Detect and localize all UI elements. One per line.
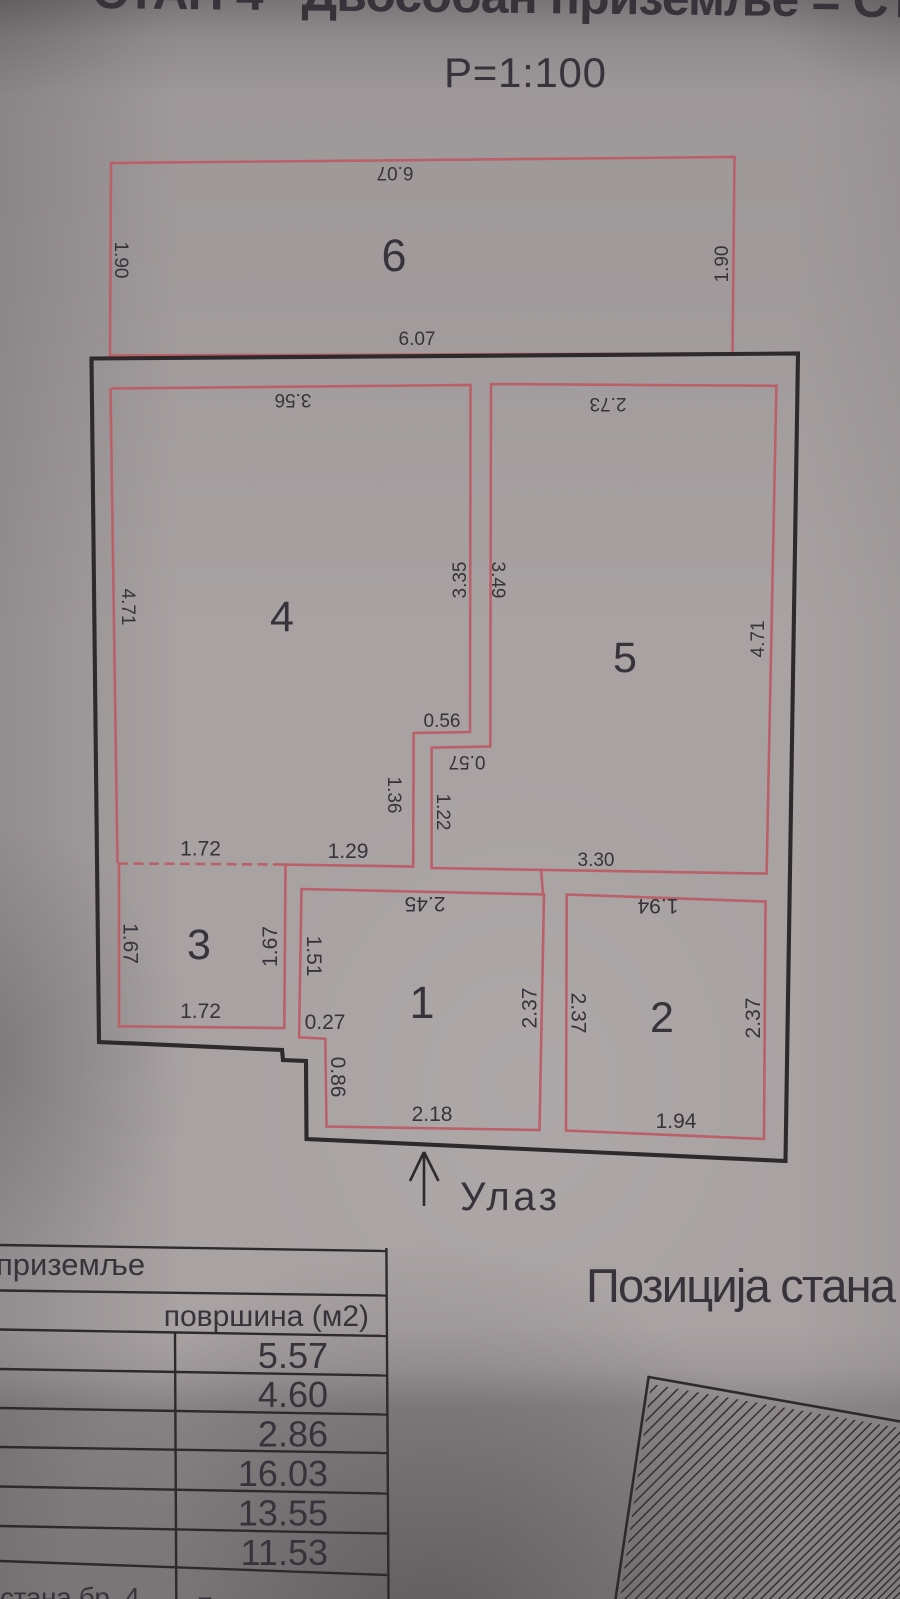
svg-text:5: 5 [196, 1591, 214, 1599]
svg-text:2.86: 2.86 [258, 1414, 328, 1455]
svg-text:13.55: 13.55 [238, 1493, 328, 1534]
svg-text:1: 1 [409, 977, 434, 1028]
svg-text:стана бр. 4: стана бр. 4 [0, 1582, 140, 1599]
svg-text:0.56: 0.56 [424, 711, 461, 732]
svg-text:приземље: приземље [0, 1247, 145, 1282]
svg-text:0.27: 0.27 [305, 1011, 346, 1034]
svg-text:6.07: 6.07 [377, 162, 414, 183]
svg-text:2.18: 2.18 [412, 1103, 453, 1126]
svg-text:1.51: 1.51 [302, 936, 325, 977]
svg-text:1.36: 1.36 [383, 777, 404, 814]
svg-text:4.60: 4.60 [258, 1374, 328, 1415]
svg-text:1.22: 1.22 [432, 794, 453, 831]
svg-text:11.53: 11.53 [241, 1532, 328, 1573]
svg-text:1.72: 1.72 [180, 838, 221, 861]
svg-text:5.57: 5.57 [258, 1335, 328, 1376]
svg-text:3: 3 [187, 921, 211, 969]
svg-text:P=1:100: P=1:100 [444, 49, 606, 96]
svg-text:3.30: 3.30 [578, 850, 615, 871]
svg-text:површина (м2): површина (м2) [164, 1300, 369, 1333]
svg-text:6: 6 [381, 230, 406, 281]
svg-text:1.90: 1.90 [110, 242, 131, 279]
svg-text:2.37: 2.37 [567, 993, 590, 1034]
svg-text:1.72: 1.72 [180, 1000, 221, 1023]
svg-text:Позиција стана: Позиција стана [586, 1259, 897, 1312]
svg-text:СТАН 4 Двособан приземље = С: СТАН 4 Двособан приземље = СТ [92, 0, 900, 28]
svg-text:2.45: 2.45 [405, 892, 446, 915]
svg-text:3.49: 3.49 [487, 562, 508, 599]
svg-text:5: 5 [613, 634, 637, 682]
svg-text:16.03: 16.03 [238, 1453, 328, 1494]
svg-text:1.90: 1.90 [712, 246, 733, 283]
svg-text:2.37: 2.37 [742, 998, 765, 1039]
svg-text:0.86: 0.86 [326, 1057, 349, 1098]
svg-text:Улаз: Улаз [460, 1175, 557, 1219]
svg-text:6.07: 6.07 [399, 329, 436, 350]
svg-text:0.57: 0.57 [449, 751, 486, 772]
svg-text:4.71: 4.71 [748, 621, 769, 658]
svg-text:2.73: 2.73 [590, 393, 627, 414]
svg-text:1.94: 1.94 [656, 1110, 697, 1133]
svg-text:3.35: 3.35 [450, 562, 471, 599]
svg-text:4: 4 [270, 593, 294, 641]
svg-text:1.94: 1.94 [637, 894, 678, 917]
svg-text:2.37: 2.37 [519, 988, 542, 1029]
svg-text:1.29: 1.29 [328, 840, 369, 863]
svg-text:4.71: 4.71 [117, 589, 138, 626]
svg-text:3.56: 3.56 [275, 389, 312, 410]
svg-text:1.67: 1.67 [119, 923, 142, 964]
svg-text:2: 2 [650, 994, 674, 1042]
svg-text:1.67: 1.67 [259, 926, 282, 967]
